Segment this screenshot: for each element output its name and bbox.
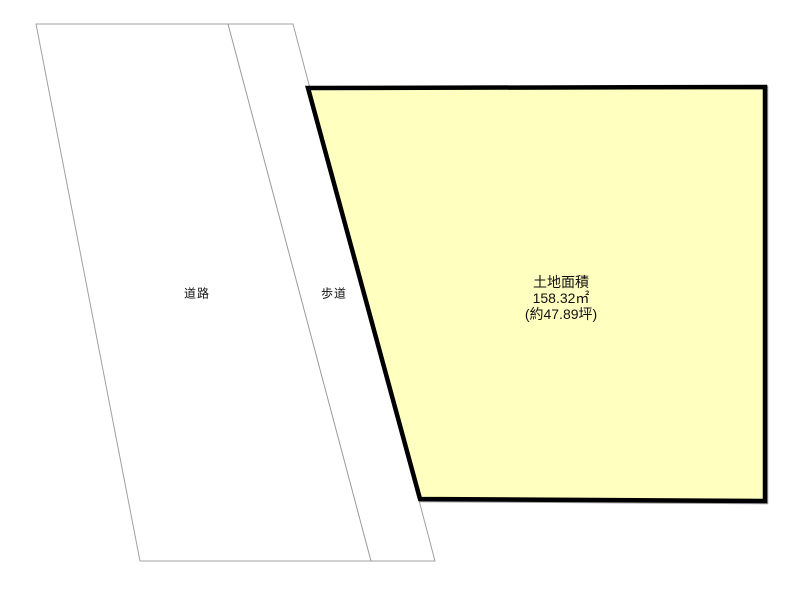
land-area-text: 土地面積 158.32㎡ (約47.89坪): [525, 274, 597, 322]
land-plot-diagram: 道路 歩道 土地面積 158.32㎡ (約47.89坪): [0, 0, 800, 589]
road-label: 道路: [184, 285, 210, 302]
land-area-square-meters: 158.32㎡: [525, 290, 597, 306]
land-area-tsubo: (約47.89坪): [525, 306, 597, 322]
sidewalk-label: 歩道: [321, 285, 347, 302]
land-area-title: 土地面積: [525, 274, 597, 290]
diagram-canvas: [0, 0, 800, 589]
